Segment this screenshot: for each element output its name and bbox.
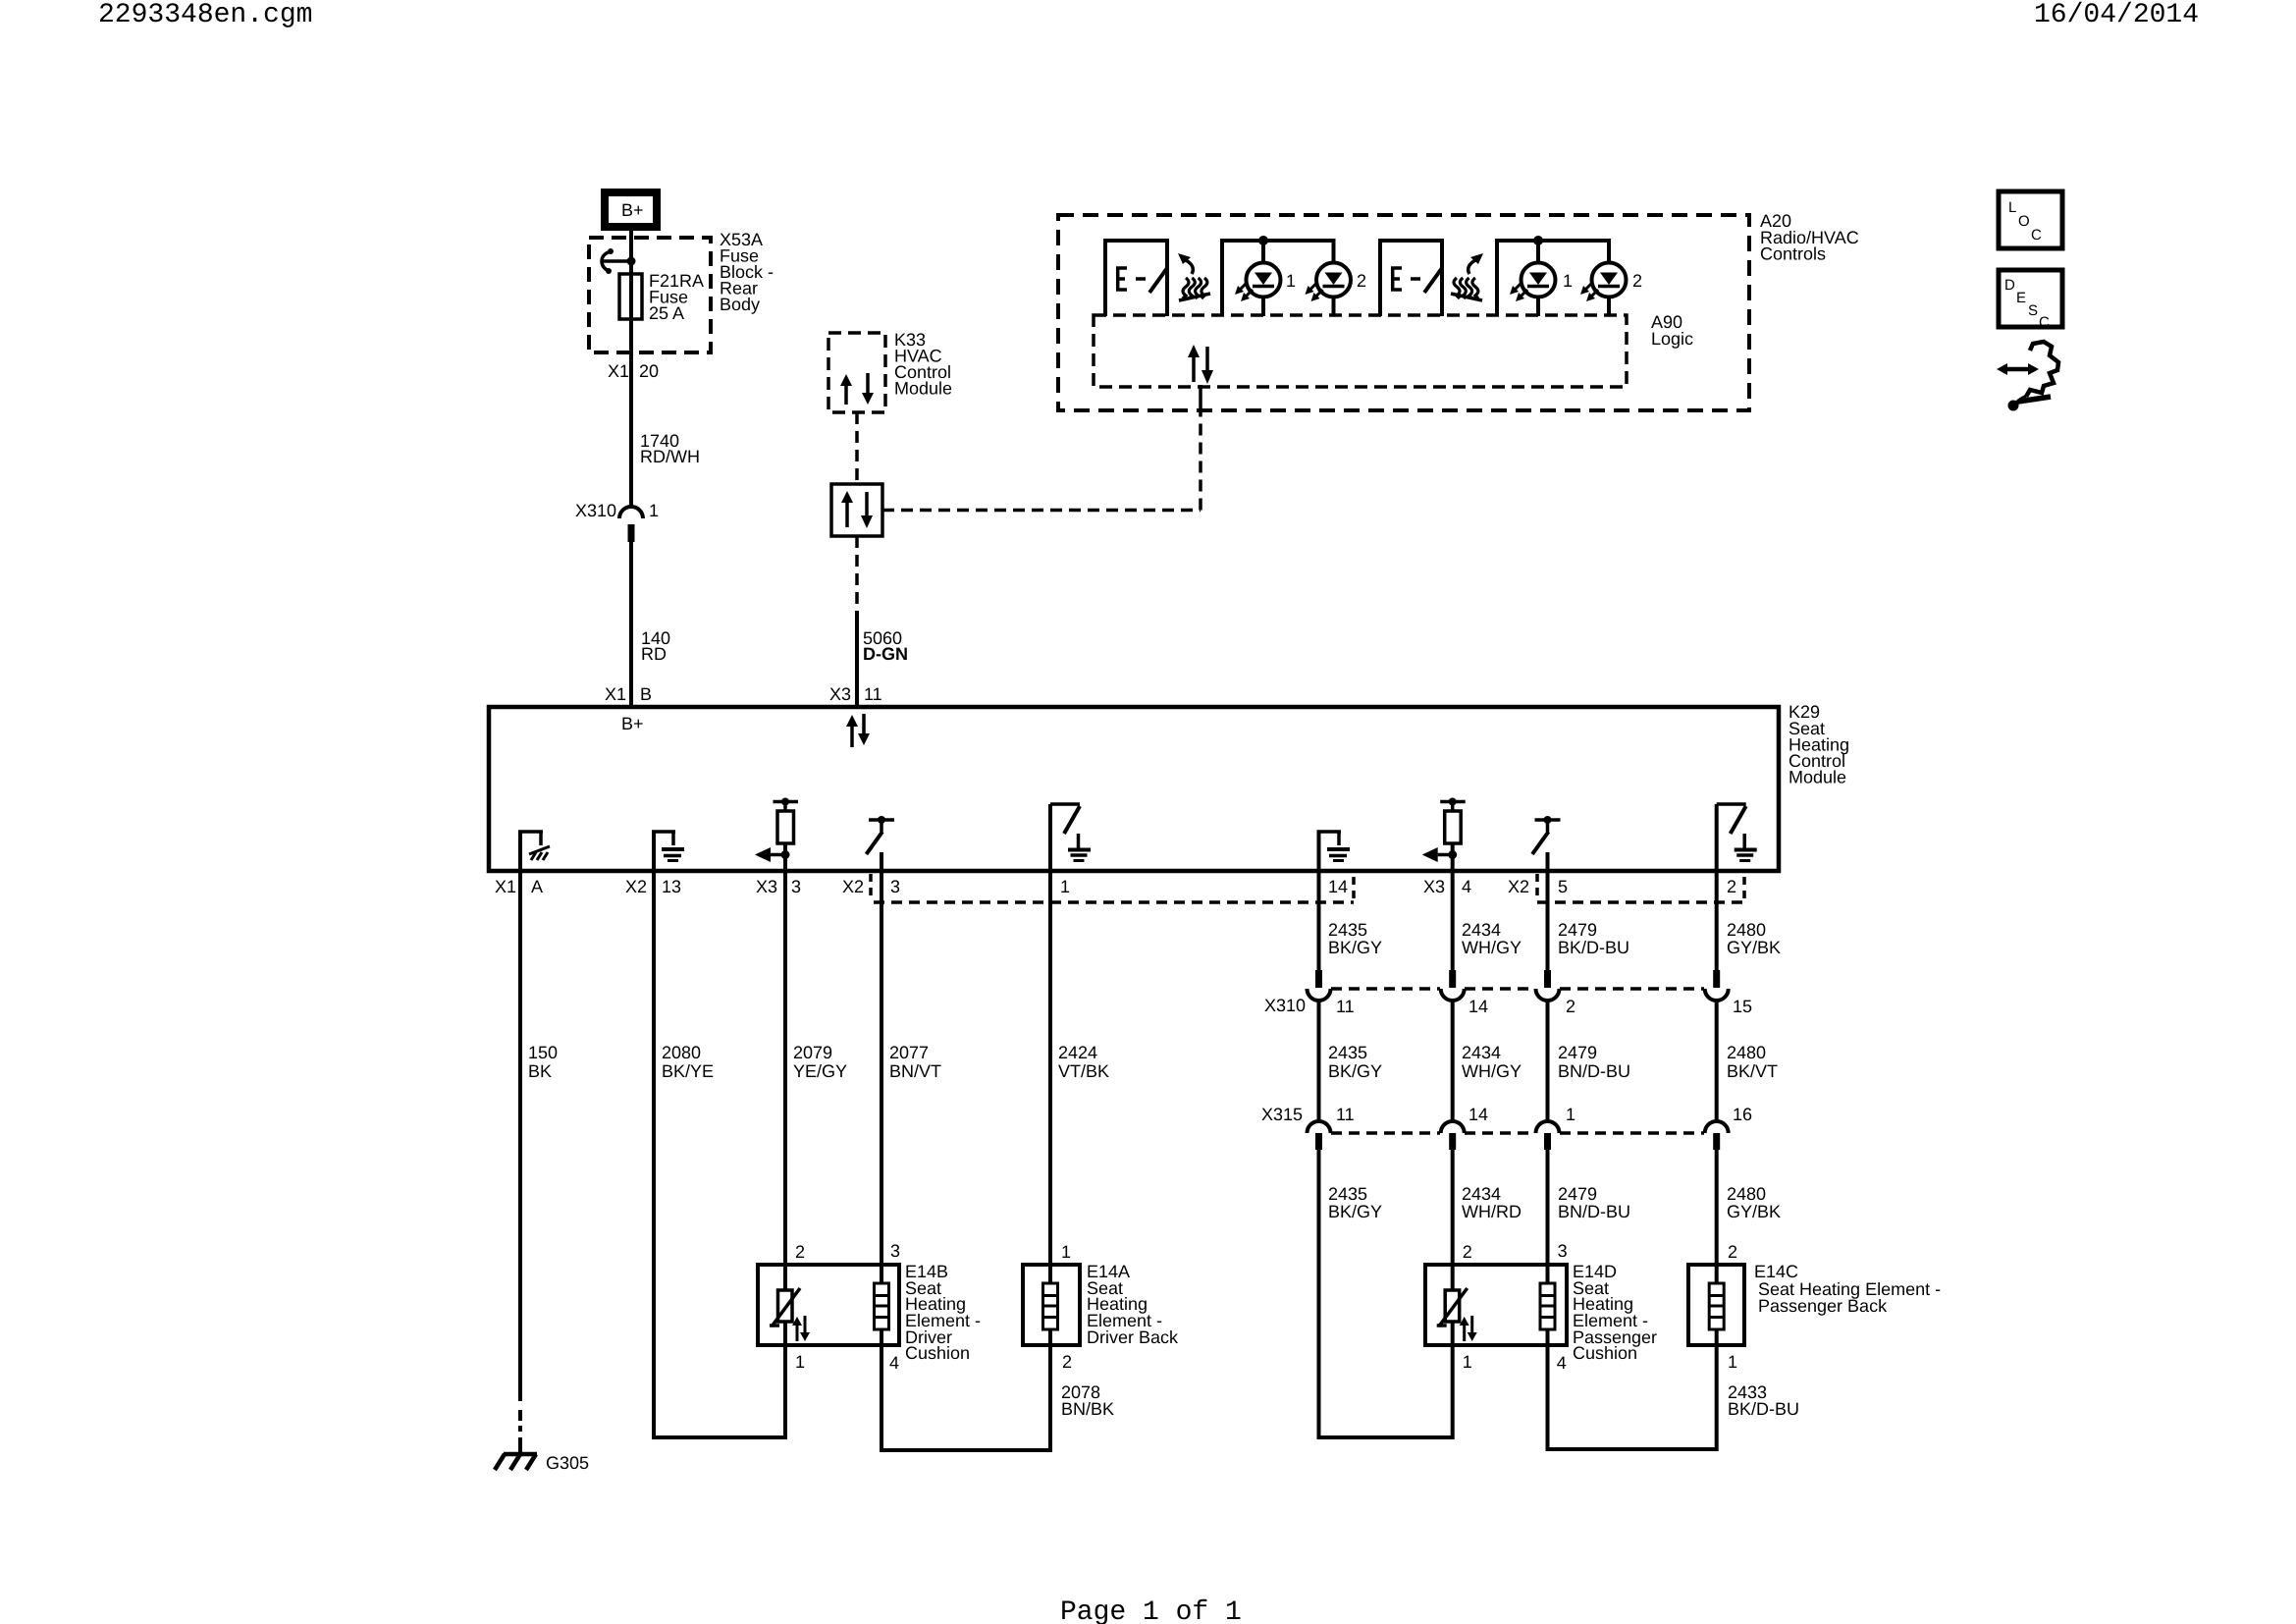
svg-text:BN/D-BU: BN/D-BU — [1558, 1202, 1630, 1221]
svg-text:E14C: E14C — [1754, 1262, 1798, 1281]
svg-text:11: 11 — [864, 684, 882, 704]
svg-text:B: B — [640, 684, 652, 704]
svg-text:X2: X2 — [1508, 877, 1529, 896]
svg-text:2: 2 — [795, 1242, 805, 1262]
svg-text:3: 3 — [890, 1241, 900, 1261]
svg-text:C: C — [2039, 314, 2050, 331]
svg-text:D-GN: D-GN — [863, 644, 908, 664]
svg-text:1: 1 — [1463, 1352, 1472, 1372]
svg-text:15: 15 — [1733, 997, 1752, 1016]
svg-text:11: 11 — [1336, 1105, 1355, 1124]
svg-text:1: 1 — [649, 501, 659, 520]
svg-text:WH/GY: WH/GY — [1462, 1061, 1522, 1081]
svg-text:L: L — [2008, 199, 2016, 216]
svg-text:X315: X315 — [1261, 1105, 1303, 1124]
svg-text:2479: 2479 — [1558, 1184, 1597, 1204]
svg-text:2080: 2080 — [662, 1043, 701, 1062]
svg-text:2435: 2435 — [1328, 1043, 1367, 1062]
svg-text:3: 3 — [1558, 1241, 1568, 1261]
svg-text:2: 2 — [1062, 1352, 1072, 1372]
svg-text:16: 16 — [1733, 1105, 1752, 1124]
svg-text:X1: X1 — [605, 684, 626, 704]
svg-text:X3: X3 — [829, 684, 851, 704]
svg-text:Cushion: Cushion — [1573, 1343, 1637, 1363]
svg-text:X310: X310 — [575, 501, 616, 520]
svg-text:BK/YE: BK/YE — [662, 1061, 714, 1081]
svg-text:1: 1 — [795, 1352, 805, 1372]
svg-text:1: 1 — [1286, 271, 1296, 291]
svg-text:Body: Body — [720, 295, 760, 314]
svg-text:RD: RD — [641, 644, 667, 664]
svg-text:3: 3 — [791, 877, 801, 896]
svg-text:2: 2 — [1727, 877, 1736, 896]
svg-text:D: D — [2004, 277, 2015, 294]
svg-text:A: A — [531, 877, 543, 896]
svg-text:BN/BK: BN/BK — [1061, 1399, 1114, 1419]
svg-text:Passenger Back: Passenger Back — [1758, 1296, 1888, 1316]
svg-text:X3: X3 — [756, 877, 777, 896]
svg-text:14: 14 — [1468, 1105, 1488, 1124]
svg-text:GY/BK: GY/BK — [1727, 1202, 1781, 1221]
svg-text:Cushion: Cushion — [905, 1343, 970, 1363]
svg-text:4: 4 — [1557, 1353, 1567, 1373]
svg-text:13: 13 — [662, 877, 681, 896]
svg-text:VT/BK: VT/BK — [1058, 1061, 1109, 1081]
svg-text:2: 2 — [1728, 1242, 1737, 1262]
svg-text:X1: X1 — [608, 361, 629, 381]
svg-text:BK/GY: BK/GY — [1328, 1061, 1382, 1081]
svg-text:4: 4 — [889, 1353, 899, 1373]
svg-text:150: 150 — [528, 1043, 558, 1062]
svg-text:2: 2 — [1632, 271, 1642, 291]
svg-text:BK/D-BU: BK/D-BU — [1728, 1399, 1799, 1419]
svg-text:B+: B+ — [621, 200, 644, 220]
svg-text:2079: 2079 — [793, 1043, 832, 1062]
svg-text:BK: BK — [528, 1061, 552, 1081]
svg-text:4: 4 — [1462, 877, 1471, 896]
svg-text:2480: 2480 — [1727, 920, 1766, 940]
svg-text:2479: 2479 — [1558, 920, 1597, 940]
svg-text:2480: 2480 — [1727, 1043, 1766, 1062]
svg-text:2434: 2434 — [1462, 920, 1501, 940]
svg-text:2424: 2424 — [1058, 1043, 1097, 1062]
svg-text:S: S — [2028, 302, 2038, 319]
svg-text:X2: X2 — [842, 877, 864, 896]
svg-text:BK/D-BU: BK/D-BU — [1558, 938, 1629, 957]
svg-text:2: 2 — [1357, 271, 1366, 291]
svg-text:1: 1 — [1728, 1352, 1737, 1372]
svg-text:1: 1 — [1060, 877, 1070, 896]
svg-text:1: 1 — [1566, 1105, 1575, 1124]
svg-text:3: 3 — [890, 877, 900, 896]
svg-text:YE/GY: YE/GY — [793, 1061, 847, 1081]
svg-text:Controls: Controls — [1760, 244, 1826, 264]
svg-text:Page 1 of 1: Page 1 of 1 — [1060, 1597, 1242, 1624]
svg-text:X3: X3 — [1423, 877, 1445, 896]
svg-text:X2: X2 — [625, 877, 647, 896]
svg-text:1: 1 — [1563, 271, 1573, 291]
svg-text:B+: B+ — [621, 714, 644, 733]
svg-text:2434: 2434 — [1462, 1184, 1501, 1204]
svg-text:WH/GY: WH/GY — [1462, 938, 1522, 957]
svg-text:2: 2 — [1463, 1242, 1472, 1262]
svg-text:14: 14 — [1468, 997, 1488, 1016]
svg-text:X1: X1 — [495, 877, 516, 896]
svg-text:G305: G305 — [546, 1453, 589, 1473]
svg-text:2435: 2435 — [1328, 920, 1367, 940]
svg-text:BK/GY: BK/GY — [1328, 1202, 1382, 1221]
svg-text:Module: Module — [894, 379, 952, 399]
svg-text:20: 20 — [639, 361, 659, 381]
svg-text:C: C — [2031, 227, 2042, 244]
svg-text:GY/BK: GY/BK — [1727, 938, 1781, 957]
svg-text:5: 5 — [1558, 877, 1568, 896]
svg-text:Logic: Logic — [1651, 329, 1693, 349]
svg-text:11: 11 — [1336, 997, 1355, 1016]
svg-text:BN/VT: BN/VT — [889, 1061, 941, 1081]
svg-text:Module: Module — [1789, 768, 1846, 787]
svg-text:E: E — [2016, 290, 2026, 306]
svg-text:2479: 2479 — [1558, 1043, 1597, 1062]
svg-text:2435: 2435 — [1328, 1184, 1367, 1204]
svg-text:2434: 2434 — [1462, 1043, 1501, 1062]
svg-text:1: 1 — [1061, 1242, 1071, 1262]
svg-text:2077: 2077 — [889, 1043, 929, 1062]
svg-text:2293348en.cgm: 2293348en.cgm — [98, 0, 312, 30]
svg-text:25 A: 25 A — [649, 303, 684, 323]
svg-text:16/04/2014: 16/04/2014 — [2034, 0, 2199, 30]
svg-text:Driver Back: Driver Back — [1087, 1327, 1179, 1347]
svg-text:BN/D-BU: BN/D-BU — [1558, 1061, 1630, 1081]
svg-text:O: O — [2018, 213, 2030, 230]
svg-text:BK/VT: BK/VT — [1727, 1061, 1778, 1081]
svg-text:14: 14 — [1328, 877, 1348, 896]
svg-text:2480: 2480 — [1727, 1184, 1766, 1204]
svg-text:WH/RD: WH/RD — [1462, 1202, 1522, 1221]
svg-text:X310: X310 — [1264, 996, 1306, 1015]
svg-text:RD/WH: RD/WH — [640, 447, 700, 466]
svg-text:BK/GY: BK/GY — [1328, 938, 1382, 957]
svg-text:2: 2 — [1566, 997, 1575, 1016]
